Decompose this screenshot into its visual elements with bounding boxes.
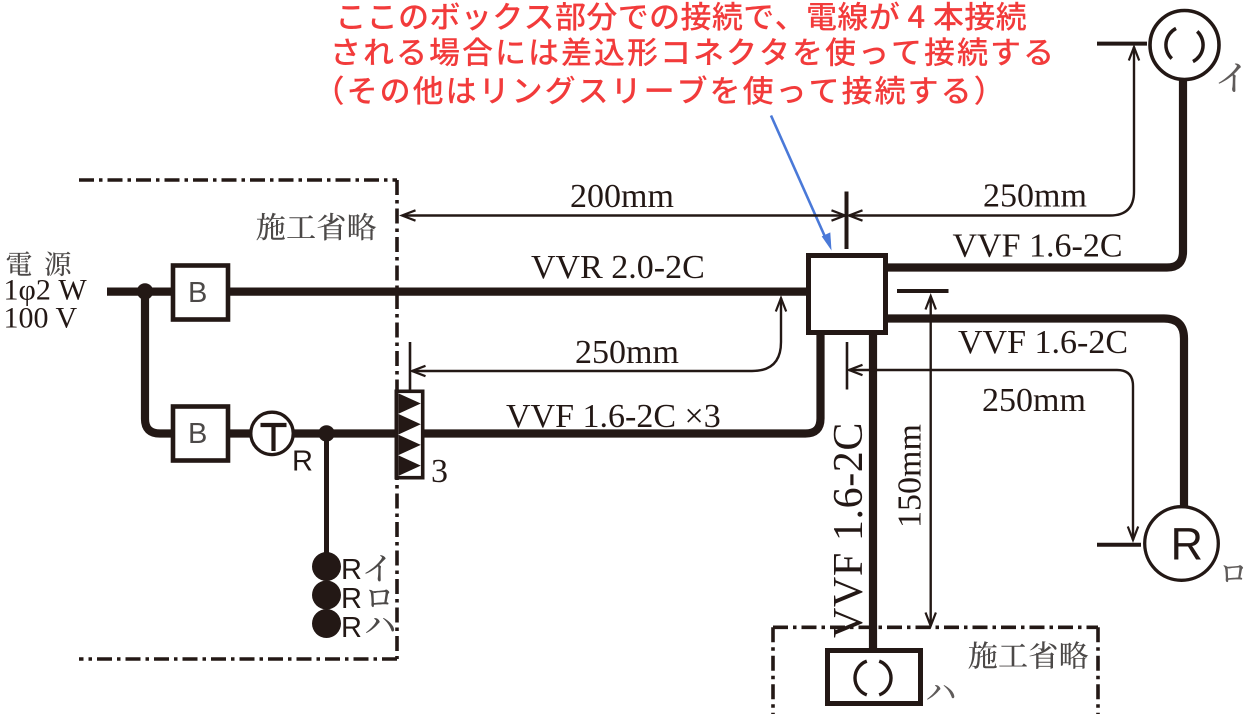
svg-text:250mm: 250mm	[982, 382, 1086, 419]
svg-text:R: R	[1171, 519, 1204, 570]
svg-text:VVF 1.6-2C ×3: VVF 1.6-2C ×3	[506, 398, 721, 435]
svg-text:R: R	[292, 446, 313, 478]
svg-text:VVF 1.6-2C: VVF 1.6-2C	[826, 422, 872, 638]
svg-text:R: R	[341, 612, 362, 644]
svg-text:200mm: 200mm	[570, 178, 674, 215]
svg-text:150mm: 150mm	[892, 424, 929, 528]
svg-text:3: 3	[431, 453, 448, 490]
svg-text:100 V: 100 V	[4, 302, 78, 335]
svg-text:R: R	[341, 583, 362, 615]
svg-text:B: B	[188, 418, 207, 450]
svg-text:VVR 2.0-2C: VVR 2.0-2C	[531, 249, 705, 286]
svg-text:250mm: 250mm	[575, 334, 679, 371]
svg-text:R: R	[341, 554, 362, 586]
svg-text:VVF 1.6-2C: VVF 1.6-2C	[953, 228, 1123, 265]
svg-text:VVF 1.6-2C: VVF 1.6-2C	[958, 324, 1128, 361]
svg-text:B: B	[188, 277, 207, 309]
svg-text:250mm: 250mm	[983, 178, 1087, 215]
